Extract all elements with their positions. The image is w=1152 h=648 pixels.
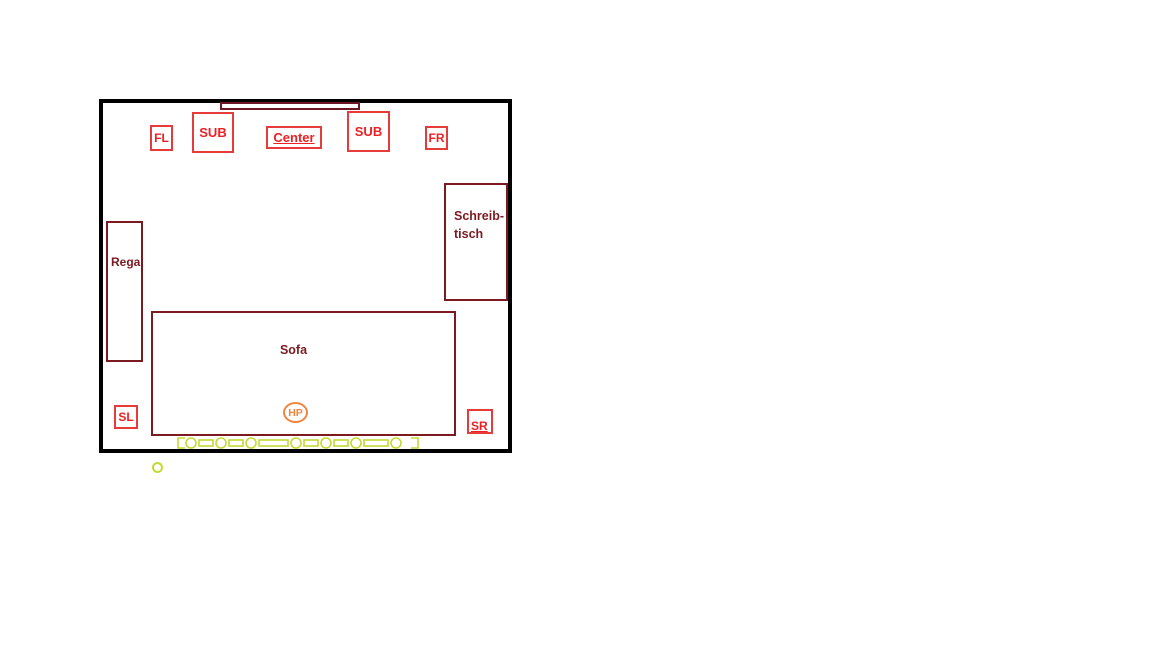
small-circle-marker [152, 462, 163, 473]
tv-screen [220, 102, 360, 110]
radiator-right-bracket [411, 438, 418, 448]
speaker-surround-left-label: SL [118, 410, 133, 424]
speaker-center-label: Center [273, 130, 314, 145]
furniture-shelf: Regal [106, 221, 143, 362]
radiator-left-bracket [178, 438, 185, 448]
desk-label-line2: tisch [454, 225, 506, 243]
furniture-desk: Schreib- tisch [444, 183, 508, 301]
subwoofer-left-label: SUB [199, 125, 226, 140]
radiator-strip [176, 436, 420, 450]
speaker-front-left: FL [150, 125, 173, 151]
speaker-front-left-label: FL [154, 131, 169, 145]
speaker-surround-left: SL [114, 405, 138, 429]
speaker-surround-right-label: SR [471, 421, 488, 432]
subwoofer-right: SUB [347, 111, 390, 152]
listening-position-marker: HP [283, 402, 308, 423]
speaker-front-right-label: FR [429, 131, 445, 145]
speaker-center: Center [266, 126, 322, 149]
listening-position-label: HP [288, 407, 303, 419]
speaker-surround-right: SR [467, 409, 493, 434]
floor-plan-canvas: FL SUB Center SUB FR Regal Schreib- tisc… [0, 0, 1152, 648]
subwoofer-left: SUB [192, 112, 234, 153]
desk-label-line1: Schreib- [454, 207, 506, 225]
subwoofer-right-label: SUB [355, 124, 382, 139]
speaker-front-right: FR [425, 126, 448, 150]
shelf-label: Regal [111, 255, 144, 269]
sofa-label: Sofa [280, 343, 307, 357]
